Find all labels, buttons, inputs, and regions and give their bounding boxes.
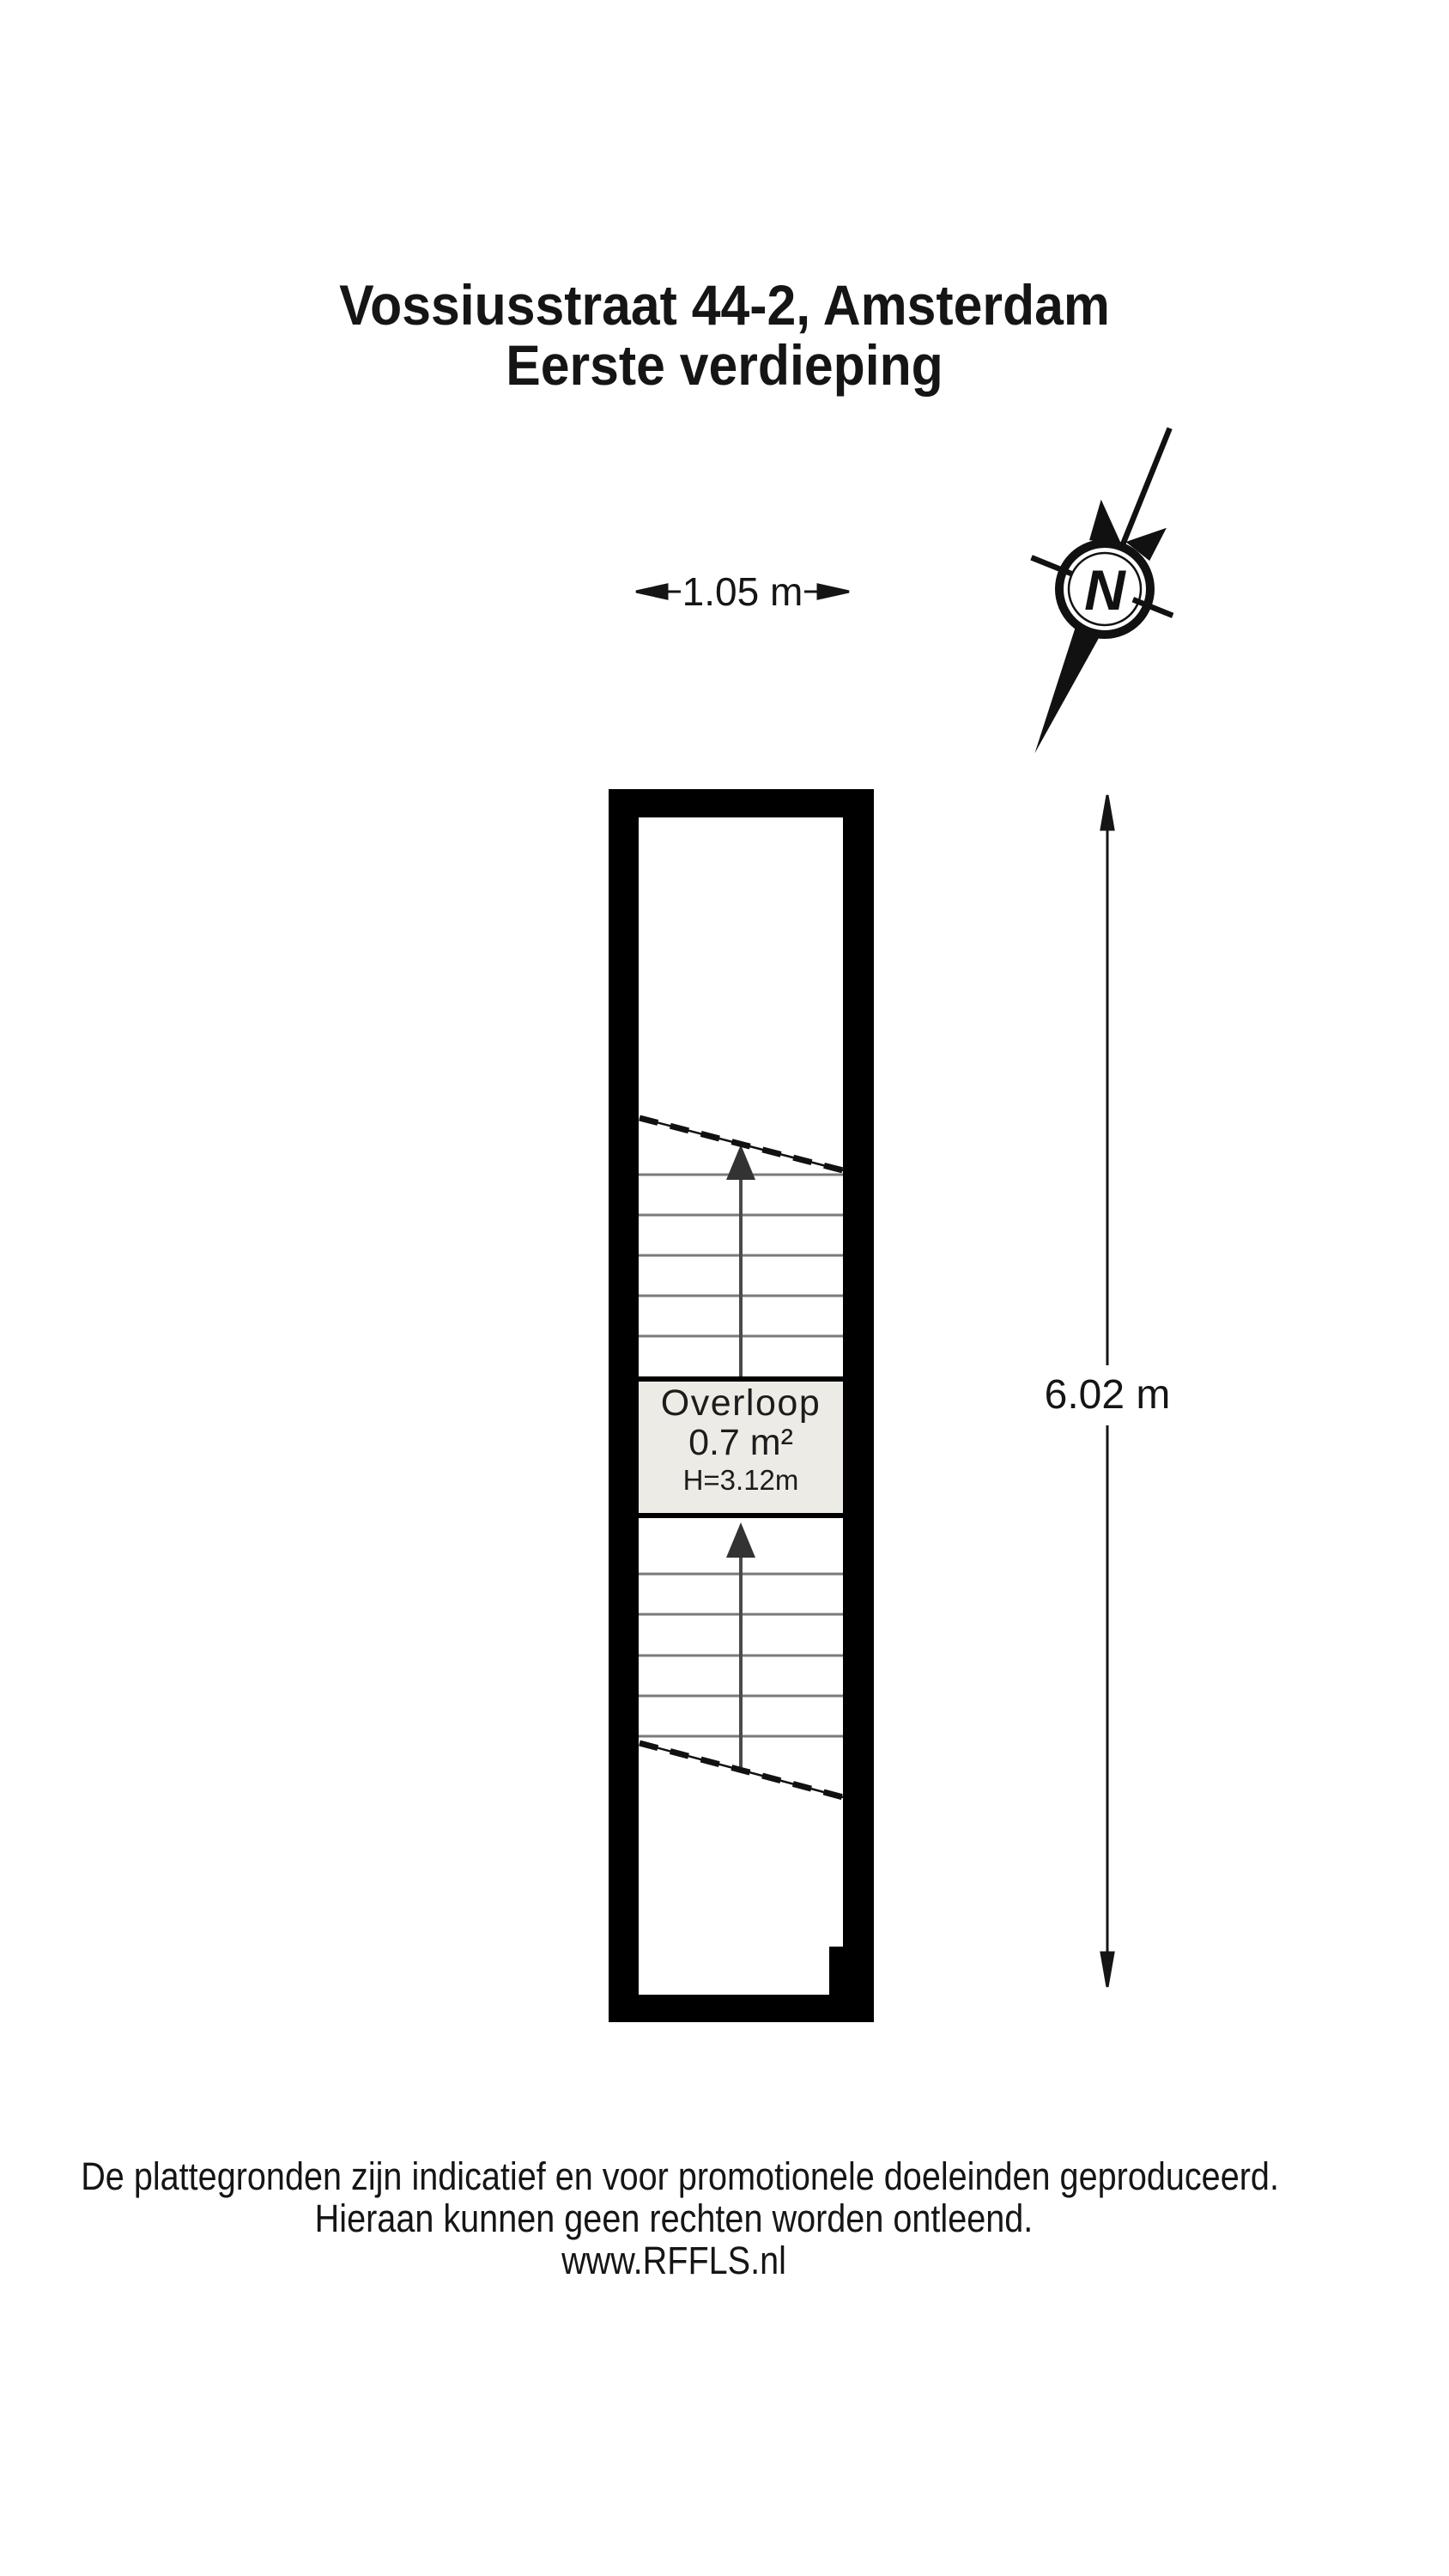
- width-dimension: 1.05 m: [631, 568, 854, 615]
- page-title: Vossiusstraat 44-2, Amsterdam Eerste ver…: [58, 275, 1391, 395]
- arrow-up-icon: [1101, 795, 1113, 829]
- footer-line-2: Hieraan kunnen geen rechten worden ontle…: [81, 2197, 1267, 2239]
- footer-website-url: www.RFFLS.nl: [81, 2239, 1267, 2281]
- north-compass-icon: N: [1004, 395, 1210, 773]
- page-subtitle: Eerste verdieping: [58, 335, 1391, 395]
- compass-needle-tail: [1026, 628, 1099, 759]
- landing-wall-top: [639, 1376, 843, 1382]
- footer-line-1: De plattegronden zijn indicatief en voor…: [81, 2155, 1267, 2197]
- room-label: Overloop 0.7 m² H=3.12m: [639, 1382, 843, 1498]
- wall-notch: [829, 1947, 874, 2022]
- room-area-label: 0.7 m²: [639, 1424, 843, 1462]
- width-dimension-label: 1.05 m: [631, 568, 854, 615]
- compass-north-label: N: [1084, 558, 1126, 622]
- footer-disclaimer: De plattegronden zijn indicatief en voor…: [81, 2155, 1267, 2281]
- room-name-label: Overloop: [639, 1382, 843, 1424]
- arrow-down-icon: [1101, 1953, 1113, 1987]
- height-dimension-label: 6.02 m: [1004, 1371, 1210, 1419]
- room-height-label: H=3.12m: [639, 1462, 843, 1498]
- floorplan-page: Vossiusstraat 44-2, Amsterdam Eerste ver…: [0, 0, 1449, 2576]
- page-title-line-1: Vossiusstraat 44-2, Amsterdam: [58, 275, 1391, 335]
- landing-wall-bottom: [639, 1513, 843, 1518]
